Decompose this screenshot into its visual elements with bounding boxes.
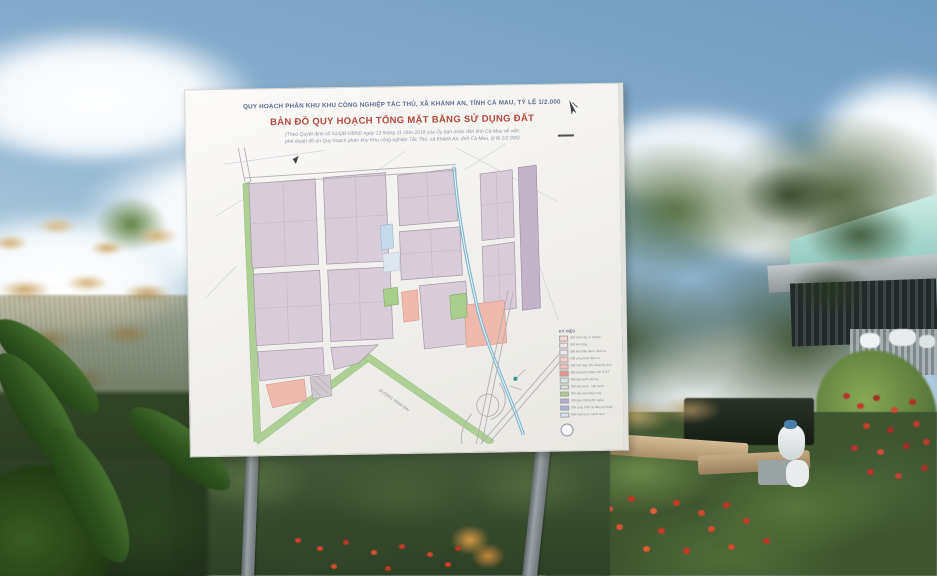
legend-label: Đất nhà máy, xí nghiệp	[570, 336, 601, 339]
legend-label: Đất khu điều hành, dịch vụ	[570, 350, 606, 354]
legend-label: Đất cây xanh tập trung	[571, 392, 601, 395]
legend-label: Đất giao thông đối ngoại	[571, 399, 604, 403]
legend-swatch	[560, 398, 569, 404]
legend-row: Đất cây xanh - mặt nước	[560, 384, 618, 391]
north-arrow-icon	[563, 98, 581, 120]
legend-row: Đất kho tàng	[559, 342, 617, 349]
white-sack	[786, 460, 809, 487]
location-marker	[509, 370, 525, 390]
legend-swatch	[560, 391, 569, 397]
legend-label: Đất công trình dịch vụ	[570, 357, 599, 360]
planning-billboard: QUY HOẠCH PHÂN KHU KHU CÔNG NGHIỆP TẮC T…	[184, 83, 629, 458]
legend-row: Đất giao thông đối ngoại	[560, 398, 618, 405]
scale-bar	[558, 134, 574, 136]
red-flower-bed	[588, 498, 788, 576]
factory-blocks	[249, 168, 518, 381]
legend-label: Đất cây xanh - mặt nước	[571, 385, 604, 389]
site-plan-map: ĐƯỜNG VÀNH ĐAI	[204, 141, 561, 448]
roundabout-symbol-icon	[560, 424, 573, 437]
legend-swatch	[560, 377, 569, 383]
laundry-cloth	[889, 329, 916, 346]
legend-swatch	[559, 342, 568, 348]
laundry-cloth	[860, 333, 880, 348]
billboard-header: QUY HOẠCH PHÂN KHU KHU CÔNG NGHIỆP TẮC T…	[185, 98, 618, 112]
blue-bucket	[784, 420, 797, 429]
legend-row: Đất cây xanh cách ly	[560, 377, 618, 384]
legend-swatch	[560, 370, 569, 376]
legend-swatch	[559, 349, 568, 355]
laundry-cloth	[919, 335, 935, 348]
legend-swatch	[560, 412, 569, 418]
legend-label: Đất mặt nước, kênh rạch	[571, 413, 604, 417]
legend-header: KÝ HIỆU	[559, 328, 617, 334]
legend-swatch	[560, 384, 569, 390]
white-sack	[778, 425, 805, 460]
road-label: ĐƯỜNG VÀNH ĐAI	[378, 388, 410, 413]
legend-row: Đất công trình đầu mối HTKT	[560, 370, 618, 377]
red-flowers	[295, 538, 495, 576]
map-legend: KÝ HIỆU Đất nhà máy, xí nghiệp Đất kho t…	[559, 328, 619, 437]
legend-row: Đất nhà máy, kho tàng (dự trữ)	[559, 363, 617, 370]
photo-scene: QUY HOẠCH PHÂN KHU KHU CÔNG NGHIỆP TẮC T…	[0, 0, 937, 576]
flow-arrow	[293, 156, 299, 164]
legend-swatch	[559, 363, 568, 369]
legend-row: Đất công trình hạ tầng kỹ thuật	[560, 405, 618, 412]
legend-label: Đất kho tàng	[570, 343, 587, 346]
red-flower-shrub	[843, 393, 937, 511]
legend-swatch	[559, 335, 568, 341]
legend-stamp	[560, 423, 618, 437]
legend-label: Đất công trình hạ tầng kỹ thuật	[571, 406, 612, 410]
mauve-strip	[518, 165, 540, 310]
legend-row: Đất mặt nước, kênh rạch	[560, 412, 618, 419]
legend-row: Đất cây xanh tập trung	[560, 391, 618, 398]
legend-row: Đất công trình dịch vụ	[559, 356, 617, 363]
legend-label: Đất nhà máy, kho tàng (dự trữ)	[571, 364, 612, 368]
legend-swatch	[560, 405, 569, 411]
legend-row: Đất khu điều hành, dịch vụ	[559, 349, 617, 356]
legend-row: Đất nhà máy, xí nghiệp	[559, 335, 617, 342]
legend-label: Đất công trình đầu mối HTKT	[571, 371, 610, 375]
legend-label: Đất cây xanh cách ly	[571, 378, 599, 381]
overhanging-branches	[740, 150, 937, 320]
legend-rows: Đất nhà máy, xí nghiệp Đất kho tàng Đất …	[559, 335, 618, 418]
legend-swatch	[559, 356, 568, 362]
